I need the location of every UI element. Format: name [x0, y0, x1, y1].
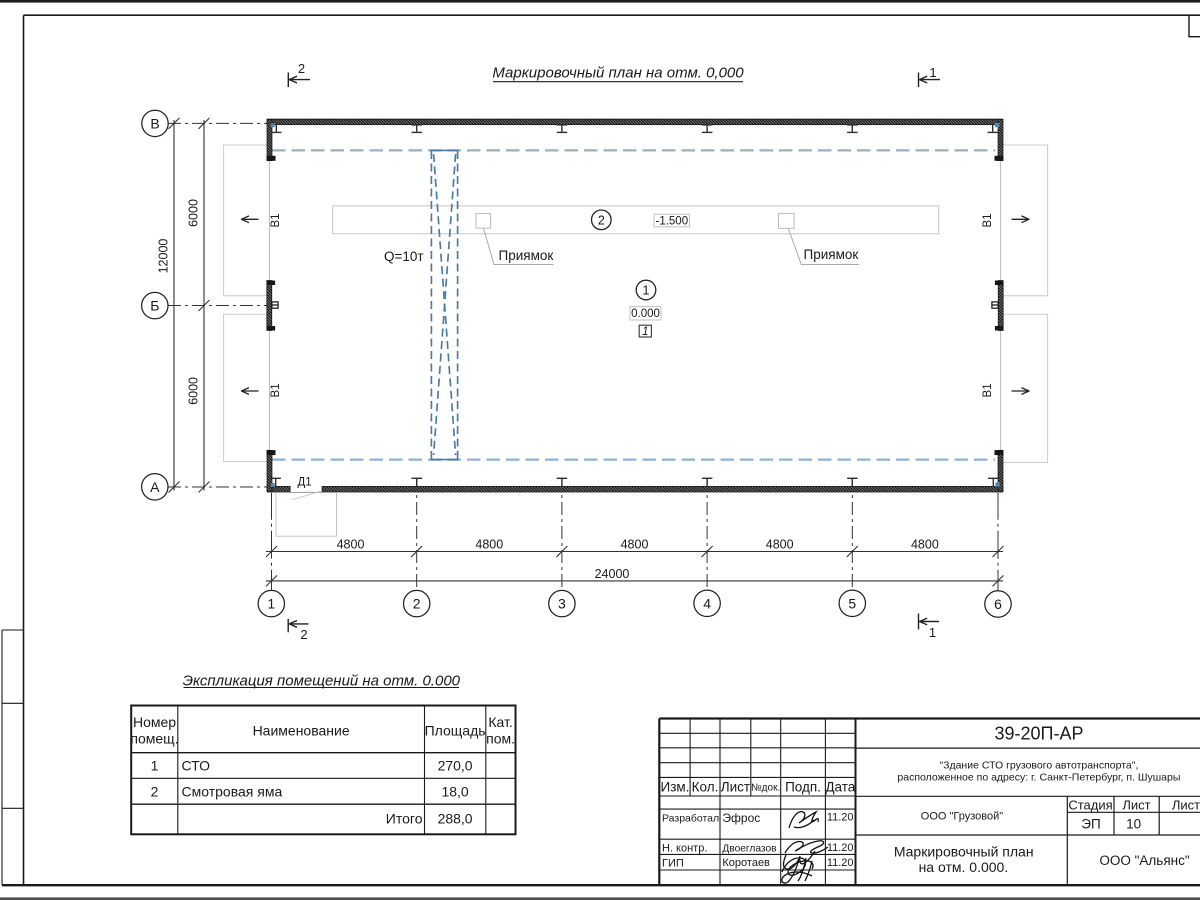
- svg-text:Приямок: Приямок: [804, 247, 859, 262]
- svg-text:Дата: Дата: [825, 780, 855, 795]
- svg-text:4800: 4800: [475, 538, 503, 552]
- svg-text:4800: 4800: [766, 538, 794, 552]
- svg-text:пом.: пом.: [486, 731, 515, 747]
- svg-text:Лист: Лист: [721, 780, 750, 795]
- svg-text:Коротаев: Коротаев: [722, 857, 770, 869]
- svg-text:2: 2: [300, 627, 307, 642]
- svg-text:Листов: Листов: [1172, 797, 1200, 812]
- svg-text:№док.: №док.: [751, 783, 780, 794]
- svg-text:1: 1: [267, 596, 275, 612]
- svg-text:2: 2: [151, 783, 159, 799]
- svg-text:18,0: 18,0: [441, 783, 468, 799]
- svg-text:Итого: Итого: [386, 810, 423, 826]
- svg-text:помещ.: помещ.: [130, 731, 178, 747]
- svg-text:0.000: 0.000: [631, 308, 660, 320]
- svg-text:Номер: Номер: [133, 714, 176, 730]
- svg-text:ООО "Альянс": ООО "Альянс": [1099, 853, 1189, 868]
- svg-text:1: 1: [643, 284, 650, 298]
- svg-text:1: 1: [642, 326, 648, 338]
- svg-text:Лист: Лист: [1122, 797, 1150, 812]
- svg-text:4800: 4800: [621, 538, 649, 552]
- svg-text:Б: Б: [150, 298, 159, 314]
- svg-text:А: А: [150, 479, 160, 495]
- svg-text:270,0: 270,0: [438, 758, 473, 774]
- svg-text:В1: В1: [270, 383, 282, 397]
- svg-text:Разработал: Разработал: [662, 813, 719, 825]
- svg-text:2: 2: [298, 61, 305, 76]
- svg-text:В1: В1: [982, 383, 994, 397]
- svg-text:Кол.: Кол.: [692, 780, 719, 795]
- svg-text:Q=10т: Q=10т: [384, 249, 424, 264]
- svg-text:1: 1: [151, 758, 159, 774]
- svg-text:1: 1: [929, 65, 936, 80]
- svg-text:11.20: 11.20: [827, 842, 854, 854]
- svg-text:11.20: 11.20: [827, 857, 854, 869]
- svg-text:В: В: [150, 115, 159, 131]
- svg-text:Д1: Д1: [298, 477, 312, 489]
- svg-text:Приямок: Приямок: [499, 248, 554, 263]
- svg-text:В1: В1: [982, 213, 994, 227]
- svg-text:288,0: 288,0: [438, 810, 473, 826]
- svg-text:"Здание СТО грузового автотран: "Здание СТО грузового автотранспорта",: [939, 760, 1138, 772]
- svg-text:5: 5: [848, 595, 856, 611]
- svg-text:-1.500: -1.500: [655, 215, 688, 227]
- svg-text:6: 6: [994, 596, 1002, 612]
- svg-text:Эфрос: Эфрос: [722, 811, 760, 825]
- svg-text:Н. контр.: Н. контр.: [662, 843, 707, 855]
- svg-text:Площадь: Площадь: [425, 723, 486, 739]
- svg-text:4800: 4800: [337, 538, 365, 552]
- svg-text:2: 2: [598, 213, 605, 227]
- svg-text:24000: 24000: [595, 567, 630, 581]
- svg-text:3: 3: [558, 596, 566, 612]
- svg-text:Маркировочный план: Маркировочный план: [894, 844, 1034, 860]
- svg-text:39-20П-АР: 39-20П-АР: [995, 724, 1084, 744]
- svg-text:6000: 6000: [187, 377, 201, 405]
- svg-text:Двоеглазов: Двоеглазов: [722, 844, 776, 855]
- svg-text:10: 10: [1126, 817, 1141, 832]
- svg-text:СТО: СТО: [182, 758, 211, 774]
- svg-text:6000: 6000: [187, 199, 201, 227]
- svg-text:ЭП: ЭП: [1081, 817, 1100, 832]
- svg-text:12000: 12000: [157, 239, 171, 274]
- svg-text:Кат.: Кат.: [488, 714, 512, 730]
- svg-text:Подп.: Подп.: [785, 780, 821, 795]
- svg-text:11.20: 11.20: [827, 812, 854, 824]
- svg-text:ООО "Грузовой": ООО "Грузовой": [921, 810, 1003, 822]
- svg-text:Стадия: Стадия: [1068, 797, 1112, 812]
- svg-text:Изм.: Изм.: [661, 780, 690, 795]
- svg-text:4: 4: [703, 595, 711, 611]
- svg-text:Наименование: Наименование: [253, 723, 350, 739]
- svg-text:на отм. 0.000.: на отм. 0.000.: [919, 859, 1009, 875]
- svg-text:В1: В1: [270, 213, 282, 227]
- svg-text:4800: 4800: [911, 538, 939, 552]
- svg-text:Маркировочный план на отм. 0,0: Маркировочный план на отм. 0,000: [492, 65, 744, 82]
- svg-text:2: 2: [413, 596, 421, 612]
- svg-text:1: 1: [929, 625, 936, 640]
- svg-text:ГИП: ГИП: [662, 858, 684, 870]
- svg-text:Смотровая яма: Смотровая яма: [182, 783, 283, 799]
- svg-text:расположенное по адресу: г. Са: расположенное по адресу: г. Санкт-Петерб…: [897, 772, 1180, 784]
